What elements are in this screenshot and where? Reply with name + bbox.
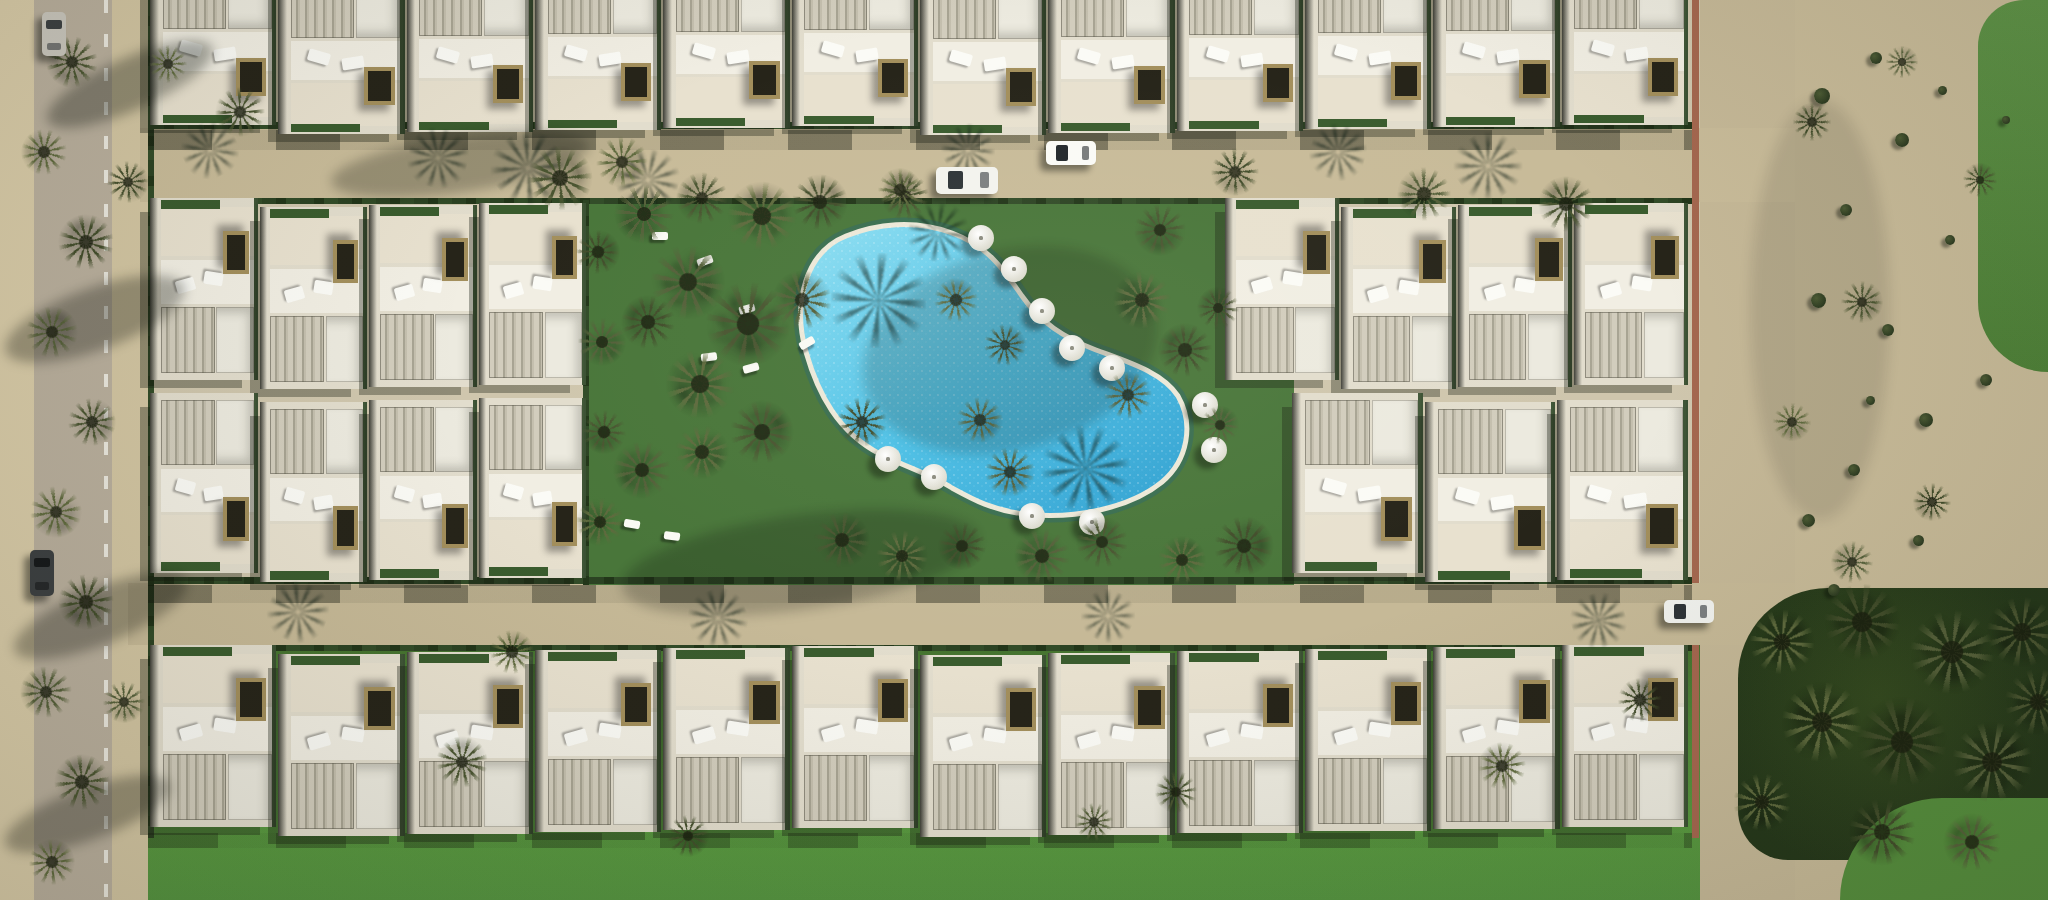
palm-tree <box>1535 173 1598 236</box>
palm-tree-crown-center <box>892 182 907 197</box>
car-windshield <box>1056 145 1068 161</box>
sun-lounger <box>1631 276 1653 292</box>
palm-tree-crown-center <box>161 57 174 70</box>
palm-tree-crown-center <box>1003 465 1017 479</box>
villa-pergola-roof-stripes <box>1305 400 1370 465</box>
sun-lounger <box>204 271 224 287</box>
sun-lounger <box>1240 53 1263 68</box>
villa-alley-shadow <box>369 205 377 387</box>
villa-alley-shadow <box>407 0 416 132</box>
villa-pergola-roof-stripes <box>1446 0 1509 31</box>
palm-tree-crown-center <box>117 695 131 709</box>
palm-tree-crown-center <box>1151 221 1169 239</box>
sun-lounger <box>1462 41 1486 58</box>
villa <box>369 205 477 387</box>
palm-tree-crown-center <box>682 830 695 843</box>
boundary-wall-upper <box>1692 0 1699 583</box>
car-rear-window <box>35 582 49 589</box>
villa-body <box>1305 649 1431 831</box>
villa-pergola-roof-stripes <box>1353 316 1410 382</box>
villa-garden-strip <box>1446 649 1515 658</box>
palm-tree-crown-center <box>45 855 58 868</box>
villa-garden-strip <box>1446 117 1515 125</box>
palm-tree-crown-center <box>1133 291 1151 309</box>
sun-lounger <box>341 727 365 743</box>
villa-alley-shadow <box>1425 402 1434 582</box>
villa-entrance-pergola-box <box>493 685 523 729</box>
villa-alley-shadow <box>278 0 287 134</box>
palm-tree-crown-center <box>813 195 828 210</box>
villa-alley-shadow <box>1292 393 1301 573</box>
villa-entrance-pergola-box <box>1263 64 1293 102</box>
palm-tree-crown-center <box>1886 726 1918 758</box>
villa-pergola-roof-stripes <box>1574 754 1637 820</box>
sun-lounger <box>204 485 224 501</box>
villa <box>792 646 918 828</box>
villa <box>1177 0 1303 131</box>
car-rear-window <box>47 43 61 50</box>
villa-alley-shadow <box>792 0 801 126</box>
villa-roof <box>1412 316 1452 382</box>
palm-tree <box>1841 791 1923 873</box>
villa-hedge <box>363 402 367 582</box>
villa-entrance-pergola-box <box>1419 240 1446 284</box>
villa-garden-strip <box>489 567 548 576</box>
palm-tree-crown-center <box>1234 536 1255 557</box>
sun-lounger <box>532 276 552 292</box>
sun-lounger <box>1322 477 1347 496</box>
palm-tree-crown-center <box>753 423 771 441</box>
dune-shrub <box>1870 52 1882 64</box>
villa-pergola-roof-stripes <box>1574 0 1637 29</box>
sun-lounger <box>1357 485 1381 501</box>
villa-alley-shadow <box>260 207 268 389</box>
sun-lounger <box>1462 725 1487 744</box>
villa-roof <box>613 0 657 34</box>
sun-lounger <box>1077 47 1101 64</box>
villa-body <box>1562 0 1688 125</box>
villa <box>1562 645 1688 827</box>
car-windshield <box>1674 604 1686 619</box>
villa-body <box>1177 0 1303 131</box>
palm-tree-crown-center <box>78 234 95 251</box>
palm-tree-crown-center <box>639 313 657 331</box>
palm-tree <box>1884 44 1920 80</box>
villa-roof <box>356 763 400 829</box>
villa-alley-shadow <box>369 400 377 580</box>
palm-tree <box>1747 607 1817 677</box>
villa-body <box>1433 647 1559 829</box>
villa <box>1557 400 1688 580</box>
villa-alley-shadow <box>1048 0 1057 133</box>
villa-entrance-pergola-box <box>1648 58 1678 96</box>
palm-tree-crown-center <box>691 375 710 394</box>
palm-tree-crown-center <box>1774 634 1791 651</box>
villa-pergola-roof-stripes <box>1469 314 1526 380</box>
villa-body <box>1557 400 1688 580</box>
sun-lounger <box>284 286 305 304</box>
sun-lounger <box>1368 722 1392 738</box>
car-white-suv-upper-road <box>1046 141 1096 165</box>
villa-roof <box>1383 758 1427 824</box>
villa-garden-strip <box>804 116 873 124</box>
sun-lounger <box>179 723 204 742</box>
sun-lounger <box>1514 278 1536 294</box>
villa-pergola-roof-stripes <box>1061 0 1124 37</box>
villa-roof <box>545 405 583 470</box>
palm-tree-crown-center <box>592 514 608 530</box>
villa-pergola-roof-stripes <box>1585 312 1642 378</box>
villa-entrance-pergola-box <box>1263 684 1293 728</box>
villa-hedge <box>1418 393 1423 573</box>
villa-pergola-roof-stripes <box>1236 307 1293 373</box>
villa <box>260 207 368 389</box>
sun-lounger <box>949 733 974 752</box>
villa-hedge <box>914 0 918 126</box>
palm-tree-crown-center <box>453 753 471 771</box>
villa-garden-strip <box>804 648 873 657</box>
villa-pergola-roof-stripes <box>291 763 354 829</box>
umbrella-pole-dot <box>886 457 889 460</box>
palm-tree-crown-center <box>1227 164 1244 181</box>
villa-alley-shadow <box>1341 207 1349 389</box>
palm-tree-crown-center <box>1558 196 1573 211</box>
palm-tree-crown-center <box>233 105 247 119</box>
villa-roof <box>998 764 1042 830</box>
villa-body <box>369 205 477 387</box>
palm-tree <box>613 183 675 245</box>
palm-tree-crown-center <box>1213 303 1224 314</box>
villa-hedge <box>1427 0 1431 129</box>
villa-alley-shadow <box>535 0 544 130</box>
villa-body <box>663 648 789 830</box>
dune-shrub <box>1811 293 1826 308</box>
villa-entrance-pergola-box <box>1006 688 1036 732</box>
villa-hedge <box>254 198 258 380</box>
villa-hedge <box>1551 402 1556 582</box>
villa-garden-strip <box>291 656 360 665</box>
villa-garden-strip <box>548 652 617 661</box>
palm-tree <box>724 394 800 470</box>
villa-garden-strip <box>1061 123 1130 131</box>
villa-roof <box>216 400 254 465</box>
villa <box>1433 647 1559 829</box>
villa <box>1225 198 1339 380</box>
villa-roof <box>1254 760 1298 826</box>
dune-shrub <box>1840 204 1852 216</box>
villa-roof <box>613 759 657 825</box>
palm-tree-crown-center <box>675 270 700 295</box>
palm-tree-crown-center <box>1174 552 1190 568</box>
sun-lounger <box>423 492 443 508</box>
umbrella-pole-dot <box>932 475 935 478</box>
villa-pergola-roof-stripes <box>1189 0 1252 35</box>
umbrella-pole-dot <box>979 236 982 239</box>
villa-hedge <box>400 654 404 836</box>
villa-body <box>1433 0 1559 127</box>
villa-pergola-roof-stripes <box>1438 409 1503 474</box>
sun-lounger <box>855 719 879 735</box>
villa-entrance-pergola-box <box>1391 62 1421 100</box>
villa <box>1292 393 1423 573</box>
sun-lounger <box>1625 47 1648 62</box>
sun-lounger <box>423 278 443 294</box>
villa-alley-shadow <box>260 402 268 582</box>
sun-lounger <box>532 490 552 506</box>
sun-lounger <box>727 50 750 65</box>
car-white-sedan-upper-road <box>936 167 998 194</box>
palm-tree-crown-center <box>2012 622 2031 641</box>
villa-entrance-pergola-box <box>1134 66 1164 104</box>
villa-entrance-pergola-box <box>1519 60 1549 98</box>
villa-hedge <box>1684 645 1688 827</box>
sun-lounger <box>1206 45 1230 62</box>
sun-lounger <box>1251 277 1274 295</box>
villa-entrance-pergola-box <box>878 679 908 723</box>
villa-alley-shadow <box>479 203 487 385</box>
villa-pergola-roof-stripes <box>489 312 543 378</box>
villa-body <box>535 0 661 130</box>
villa-hedge <box>473 400 477 580</box>
villa-entrance-pergola-box <box>1651 236 1678 280</box>
villa-body <box>407 0 533 132</box>
villa <box>479 398 587 578</box>
car-windshield <box>46 20 61 29</box>
palm-tree-crown-center <box>1632 692 1648 708</box>
palm-tree-crown-center <box>637 207 652 222</box>
villa-pergola-roof-stripes <box>489 405 543 470</box>
palm-tree-crown-center <box>1927 497 1937 507</box>
villa <box>663 0 789 128</box>
villa-alley-shadow <box>792 646 801 828</box>
sun-lounger <box>307 732 332 751</box>
villa-entrance-pergola-box <box>333 240 359 284</box>
villa-entrance-pergola-box <box>1303 231 1330 275</box>
palm-tree-crown-center <box>596 424 611 439</box>
villa-pergola-roof-stripes <box>1570 407 1635 472</box>
pool-umbrella <box>875 446 901 472</box>
villa-body <box>663 0 789 128</box>
car-rear-window <box>980 172 989 188</box>
umbrella-pole-dot <box>1040 309 1043 312</box>
villa-pergola-roof-stripes <box>676 0 739 32</box>
umbrella-pole-dot <box>1110 366 1113 369</box>
villa-hedge <box>363 207 367 389</box>
villa-roof <box>435 314 473 380</box>
villa-alley-shadow <box>1305 649 1314 831</box>
palm-tree-crown-center <box>591 245 606 260</box>
sun-lounger <box>564 44 588 61</box>
villa <box>1562 0 1688 125</box>
villa-alley-shadow <box>1458 205 1466 387</box>
sun-lounger <box>1590 723 1615 742</box>
sun-lounger <box>1112 55 1135 70</box>
villa-roof <box>1528 314 1568 380</box>
villa-body <box>920 0 1046 135</box>
villa-alley-shadow <box>479 398 487 578</box>
villa-pergola-roof-stripes <box>419 0 482 36</box>
sun-lounger <box>1111 726 1135 742</box>
palm-tree-crown-center <box>1872 822 1892 842</box>
villa-garden-strip <box>1438 571 1510 580</box>
villa-garden-strip <box>1189 121 1258 129</box>
villa-hedge <box>1555 647 1559 829</box>
villa-garden-strip <box>1189 653 1258 662</box>
sun-lounger <box>855 48 878 63</box>
palm-tree-crown-center <box>1120 387 1137 404</box>
villa-roof <box>216 307 254 373</box>
villa-garden-strip <box>1061 655 1130 664</box>
villa-roof <box>1511 0 1555 31</box>
villa <box>1177 651 1303 833</box>
palm-tree <box>1982 592 2048 672</box>
villa-roof <box>484 761 528 827</box>
palm-tree-crown-center <box>1095 535 1109 549</box>
villa-body <box>1225 198 1339 380</box>
palm-tree-crown-center <box>48 504 64 520</box>
villa-entrance-pergola-box <box>1535 238 1562 282</box>
villa-garden-strip <box>1570 569 1642 578</box>
palm-tree-crown-center <box>633 461 650 478</box>
palm-tree <box>24 834 80 890</box>
sun-lounger <box>692 726 717 745</box>
palm-tree-crown-center <box>1177 342 1193 358</box>
villa-body <box>260 207 368 389</box>
palm-tree-crown-center <box>832 530 851 549</box>
sun-lounger <box>1496 720 1520 736</box>
villa-alley-shadow <box>1562 0 1571 125</box>
sun-lounger <box>1600 282 1623 300</box>
villa-hedge <box>785 0 789 128</box>
palm-tree <box>1072 512 1132 572</box>
sun-lounger <box>598 723 622 739</box>
villa-hedge <box>657 0 661 130</box>
villa-body <box>479 398 587 578</box>
dune-shrub <box>1802 514 1815 527</box>
building-shadow-lower-road <box>148 585 1692 603</box>
sun-lounger <box>503 483 524 501</box>
sun-lounger <box>598 52 621 67</box>
villa <box>663 648 789 830</box>
villa-alley-shadow <box>278 654 287 836</box>
palm-tree-crown-center <box>549 167 570 188</box>
palm-tree-crown-center <box>596 336 608 348</box>
palm-tree <box>592 132 653 193</box>
pool-umbrella <box>1001 256 1027 282</box>
palm-tree-crown-center <box>1963 833 1981 851</box>
villa-hedge <box>1684 0 1688 125</box>
palm-tree <box>660 344 739 423</box>
villa-body <box>1562 645 1688 827</box>
villa-entrance-pergola-box <box>1514 506 1545 549</box>
villa-hedge <box>254 393 258 573</box>
villa <box>792 0 918 126</box>
palm-tree-crown-center <box>1845 555 1859 569</box>
palm-tree <box>873 527 931 585</box>
villa-entrance-pergola-box <box>1134 686 1164 730</box>
villa-garden-strip <box>548 120 617 128</box>
villa-body <box>278 654 404 836</box>
villa-pergola-roof-stripes <box>291 0 354 38</box>
villa-entrance-pergola-box <box>493 65 523 103</box>
umbrella-pole-dot <box>1070 346 1073 349</box>
sun-lounger <box>820 724 845 743</box>
palm-tree-crown-center <box>1937 637 1966 666</box>
villa-hedge <box>914 646 918 828</box>
villa-hedge <box>1555 0 1559 127</box>
villa-entrance-pergola-box <box>749 61 779 99</box>
villa-body <box>1292 393 1423 573</box>
villa-hedge <box>1335 198 1339 380</box>
pool-umbrella <box>921 464 947 490</box>
villa-body <box>278 0 404 134</box>
villa <box>278 654 404 836</box>
sun-lounger <box>470 54 493 69</box>
villa-roof <box>1254 0 1298 35</box>
villa-body <box>1341 207 1455 389</box>
palm-tree-crown-center <box>973 413 987 427</box>
sun-lounger <box>1398 280 1420 296</box>
palm-tree <box>576 316 628 368</box>
villa-body <box>535 650 661 832</box>
sun-lounger <box>342 56 365 71</box>
villa-alley-shadow <box>1562 645 1571 827</box>
car-dark-left-street <box>30 550 54 596</box>
pool-umbrella <box>1029 298 1055 324</box>
dune-shrub <box>1882 324 1894 336</box>
villa-body <box>1305 0 1431 129</box>
villa-roof <box>1639 0 1683 29</box>
villa <box>369 400 477 580</box>
villa-entrance-pergola-box <box>223 497 249 540</box>
villa-pergola-roof-stripes <box>270 316 324 382</box>
villa-entrance-pergola-box <box>364 687 394 731</box>
palm-tree-crown-center <box>615 155 630 170</box>
villa-garden-strip <box>1574 115 1643 123</box>
villa-pergola-roof-stripes <box>1318 0 1381 33</box>
dune-shrub <box>2002 116 2010 124</box>
palm-tree-crown-center <box>1495 759 1509 773</box>
villa-pergola-roof-stripes <box>933 0 996 39</box>
villa-roof <box>356 0 400 38</box>
palm-tree-crown-center <box>733 309 762 338</box>
villa-hedge <box>1683 400 1688 580</box>
palm-tree-crown-center <box>36 144 52 160</box>
villa-entrance-pergola-box <box>223 231 249 275</box>
villa-roof <box>228 754 272 820</box>
villa-entrance-pergola-box <box>878 59 908 97</box>
villa-hedge <box>400 0 404 134</box>
villa-garden-strip <box>676 118 745 126</box>
car-rear-window <box>1082 146 1090 160</box>
villa-pergola-roof-stripes <box>161 400 215 465</box>
sun-lounger <box>1205 729 1230 748</box>
villa-entrance-pergola-box <box>621 63 651 101</box>
villa-entrance-pergola-box <box>1519 680 1549 724</box>
villa-entrance-pergola-box <box>749 681 779 725</box>
dune-shrub <box>1913 535 1924 546</box>
villa-garden-strip <box>291 124 360 132</box>
villa-hedge <box>473 205 477 387</box>
palm-tree-crown-center <box>693 443 710 460</box>
palm-tree-crown-center <box>1855 295 1870 310</box>
villa-pergola-roof-stripes <box>933 764 996 830</box>
sun-lounger <box>983 728 1007 744</box>
villa-hedge <box>1427 649 1431 831</box>
villa-body <box>1177 651 1303 833</box>
villa-garden-strip <box>163 647 232 656</box>
car-rear-window <box>1700 605 1708 618</box>
